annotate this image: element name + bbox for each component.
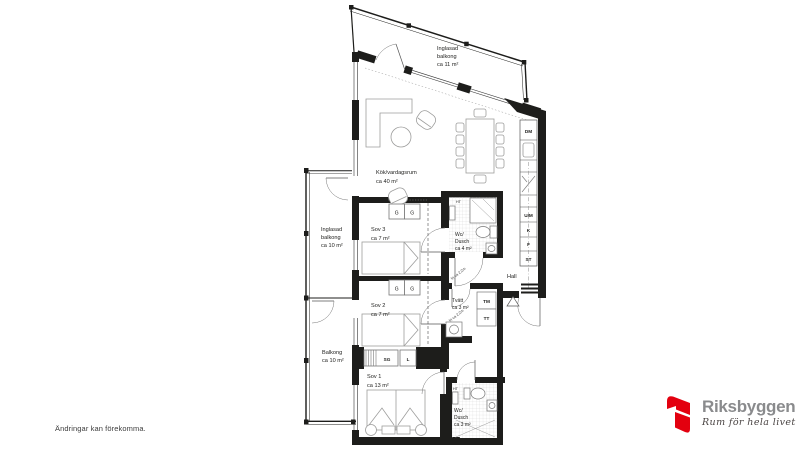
label-kitchen-living-2: ca 40 m² xyxy=(376,179,398,185)
toilet-bowl xyxy=(476,227,490,238)
label-balcony-left-1: Balkong xyxy=(322,350,342,356)
bed-single xyxy=(362,242,420,274)
disclaimer-text: Ändringar kan förekomma. xyxy=(55,424,146,433)
label-laundry-1: Tvätt xyxy=(452,298,464,304)
label-balcony-top-1: Inglasad xyxy=(437,46,458,52)
toilet-tank xyxy=(490,226,497,238)
towel-radiator xyxy=(450,206,456,220)
label-wardrobe-g: G xyxy=(410,211,414,217)
label-wardrobe-g: G xyxy=(395,287,399,293)
label-bedroom2-1: Sov 2 xyxy=(371,303,385,309)
brand-name: Riksbyggen xyxy=(702,398,796,415)
label-linen-closet: L xyxy=(407,357,410,362)
label-free-dim-1: fri ca 2,2m xyxy=(450,267,466,281)
label-dryer: TT xyxy=(484,316,490,321)
label-pantry: ST xyxy=(526,257,532,262)
bathroom-small: HT Wc/ Dusch ca 3 m² xyxy=(452,360,497,438)
glazed-balcony-left: Inglasad balkong ca 10 m² xyxy=(304,168,352,425)
label-sliding-wardrobe: SG xyxy=(384,357,391,362)
sliding-wardrobe xyxy=(364,350,398,366)
label-bathroom-large-1: Wc/ xyxy=(455,232,464,238)
label-kitchen-living-1: Kök/vardagsrum xyxy=(376,170,417,176)
label-bedroom1-2: ca 13 m² xyxy=(367,383,389,389)
label-bathroom-large-3: ca 4 m² xyxy=(455,246,472,252)
label-towel-radiator: HT xyxy=(456,200,462,204)
label-bathroom-large-2: Dusch xyxy=(455,239,469,245)
toilet-tank xyxy=(464,388,470,399)
towel-radiator xyxy=(453,392,459,404)
label-freezer: F xyxy=(527,242,530,247)
label-bedroom3-1: Sov 3 xyxy=(371,227,385,233)
label-balcony-top-3: ca 11 m² xyxy=(437,62,458,68)
bedroom-2: G G Sov 2 ca 7 m² xyxy=(362,280,445,346)
label-glazed-balcony-left-2: balkong xyxy=(321,235,341,241)
riksbyggen-logo: Riksbyggen Rum för hela livet xyxy=(662,392,796,440)
label-balcony-left-2: ca 10 m² xyxy=(322,358,344,364)
coffee-table xyxy=(391,127,411,147)
toilet-bowl xyxy=(471,388,485,399)
label-hall: Hall xyxy=(507,274,517,280)
open-balcony-left: Balkong ca 10 m² xyxy=(306,301,356,425)
label-towel-radiator: HT xyxy=(453,387,459,391)
glazed-balcony-top: Inglasad balkong ca 11 m² xyxy=(349,5,529,103)
hall: Hall xyxy=(507,274,540,326)
page: Inglasad balkong ca 11 m² xyxy=(0,0,810,455)
label-balcony-top-2: balkong xyxy=(437,54,457,60)
label-wardrobe-g: G xyxy=(395,211,399,217)
riksbyggen-logo-icon xyxy=(662,392,696,440)
label-glazed-balcony-left-3: ca 10 m² xyxy=(321,243,343,249)
label-wardrobe-g: G xyxy=(410,287,414,293)
label-dishwasher: DM xyxy=(525,129,532,134)
label-bathroom-small-1: Wc/ xyxy=(454,408,463,414)
bathroom-large: HT Wc/ Dusch ca 4 m² fri ca 2,2m xyxy=(449,197,497,286)
laundry: TM TT Tvätt ca 3 m² fri ca 2,2m xyxy=(446,289,496,337)
label-washer-micro: U/M xyxy=(524,213,533,218)
wall-west xyxy=(351,52,360,445)
floor-plan: Inglasad balkong ca 11 m² xyxy=(0,0,810,455)
dining-table xyxy=(466,119,494,173)
brand-tagline: Rum för hela livet xyxy=(702,417,796,428)
armchair-1 xyxy=(414,108,438,131)
label-washing-machine: TM xyxy=(483,299,490,304)
kitchen-run: DM U/M K F ST xyxy=(520,110,546,298)
label-bedroom2-2: ca 7 m² xyxy=(371,312,390,318)
label-bedroom1-1: Sov 1 xyxy=(367,374,381,380)
label-bedroom3-2: ca 7 m² xyxy=(371,236,390,242)
bedroom-3: G G Sov 3 ca 7 m² xyxy=(362,204,445,274)
bed-double xyxy=(366,390,427,436)
label-glazed-balcony-left-1: Inglasad xyxy=(321,227,342,233)
bed-single xyxy=(362,314,420,346)
